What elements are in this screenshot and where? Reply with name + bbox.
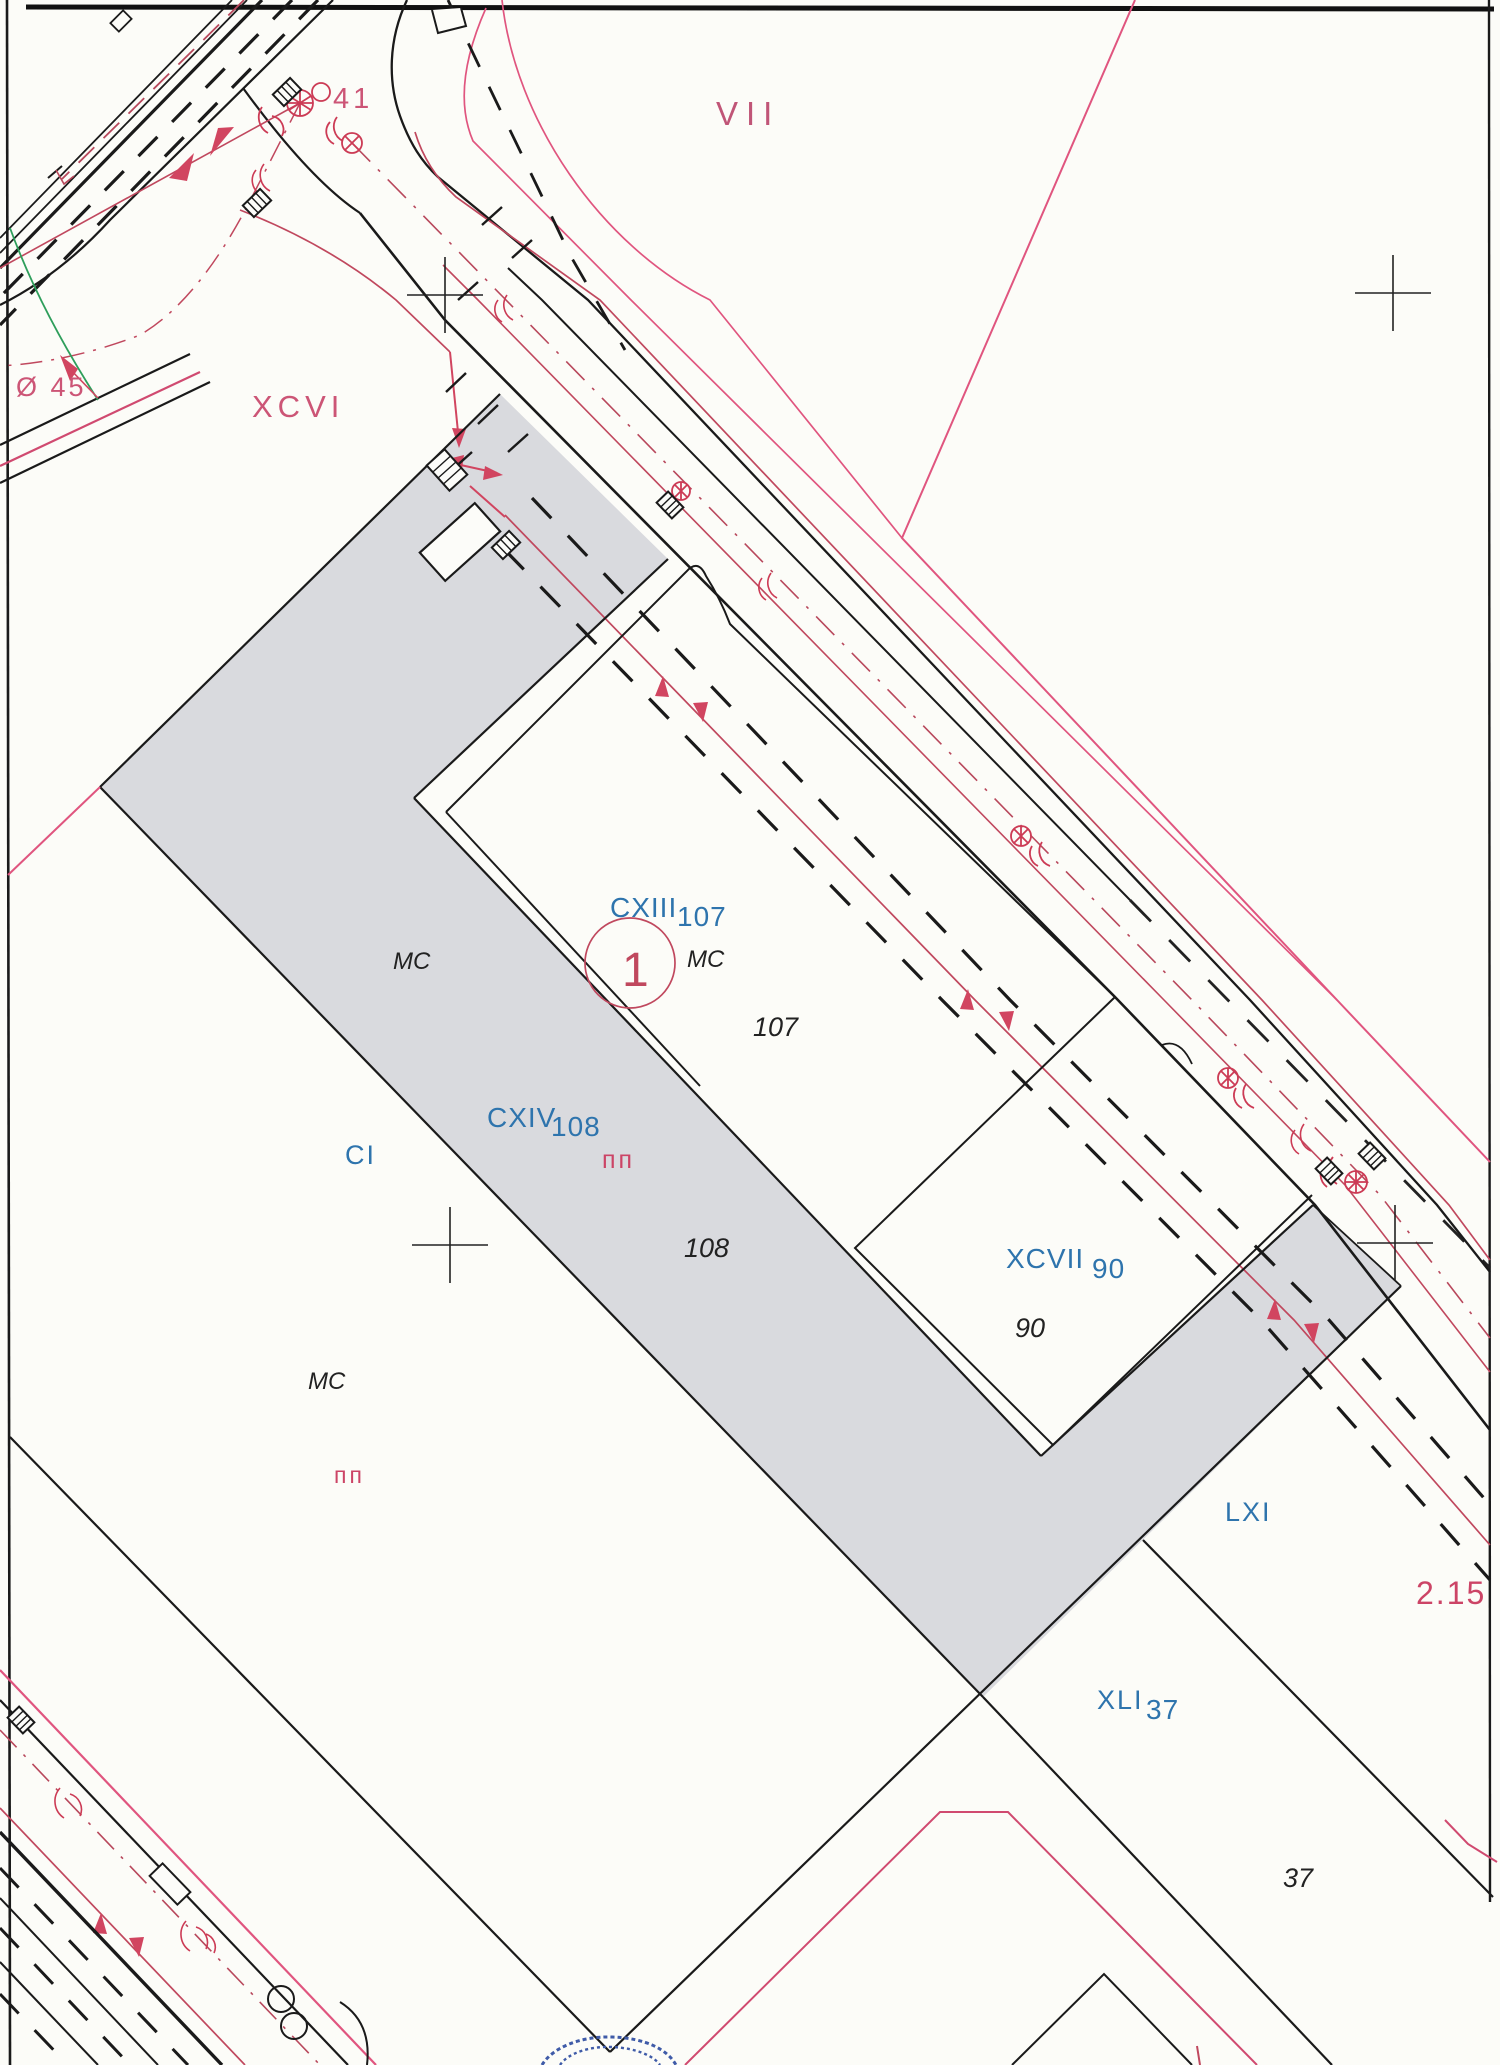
svg-text:MC: MC bbox=[687, 946, 725, 973]
svg-text:CXIV: CXIV bbox=[487, 1102, 556, 1133]
svg-text:пп: пп bbox=[602, 1146, 635, 1174]
svg-text:MC: MC bbox=[393, 948, 431, 975]
svg-text:пп: пп bbox=[334, 1462, 365, 1488]
svg-text:XLI: XLI bbox=[1097, 1685, 1144, 1715]
svg-text:2.15: 2.15 bbox=[1416, 1575, 1486, 1611]
svg-text:XCVII: XCVII bbox=[1006, 1243, 1084, 1274]
svg-text:1: 1 bbox=[622, 944, 649, 997]
svg-text:107: 107 bbox=[753, 1012, 799, 1042]
svg-text:CXIII: CXIII bbox=[610, 892, 677, 923]
svg-text:CI: CI bbox=[345, 1140, 376, 1170]
svg-text:90: 90 bbox=[1015, 1313, 1045, 1343]
svg-text:108: 108 bbox=[551, 1111, 601, 1142]
svg-text:37: 37 bbox=[1146, 1694, 1179, 1725]
svg-text:VII: VII bbox=[716, 95, 780, 132]
svg-text:37: 37 bbox=[1283, 1863, 1314, 1893]
svg-text:Ø 45: Ø 45 bbox=[16, 372, 87, 402]
svg-text:90: 90 bbox=[1092, 1253, 1125, 1284]
svg-text:108: 108 bbox=[684, 1233, 729, 1263]
svg-text:XCVI: XCVI bbox=[252, 389, 344, 424]
svg-text:107: 107 bbox=[677, 901, 727, 932]
svg-text:LXI: LXI bbox=[1225, 1497, 1272, 1527]
svg-text:41: 41 bbox=[333, 83, 373, 115]
svg-text:MC: MC bbox=[308, 1368, 346, 1395]
